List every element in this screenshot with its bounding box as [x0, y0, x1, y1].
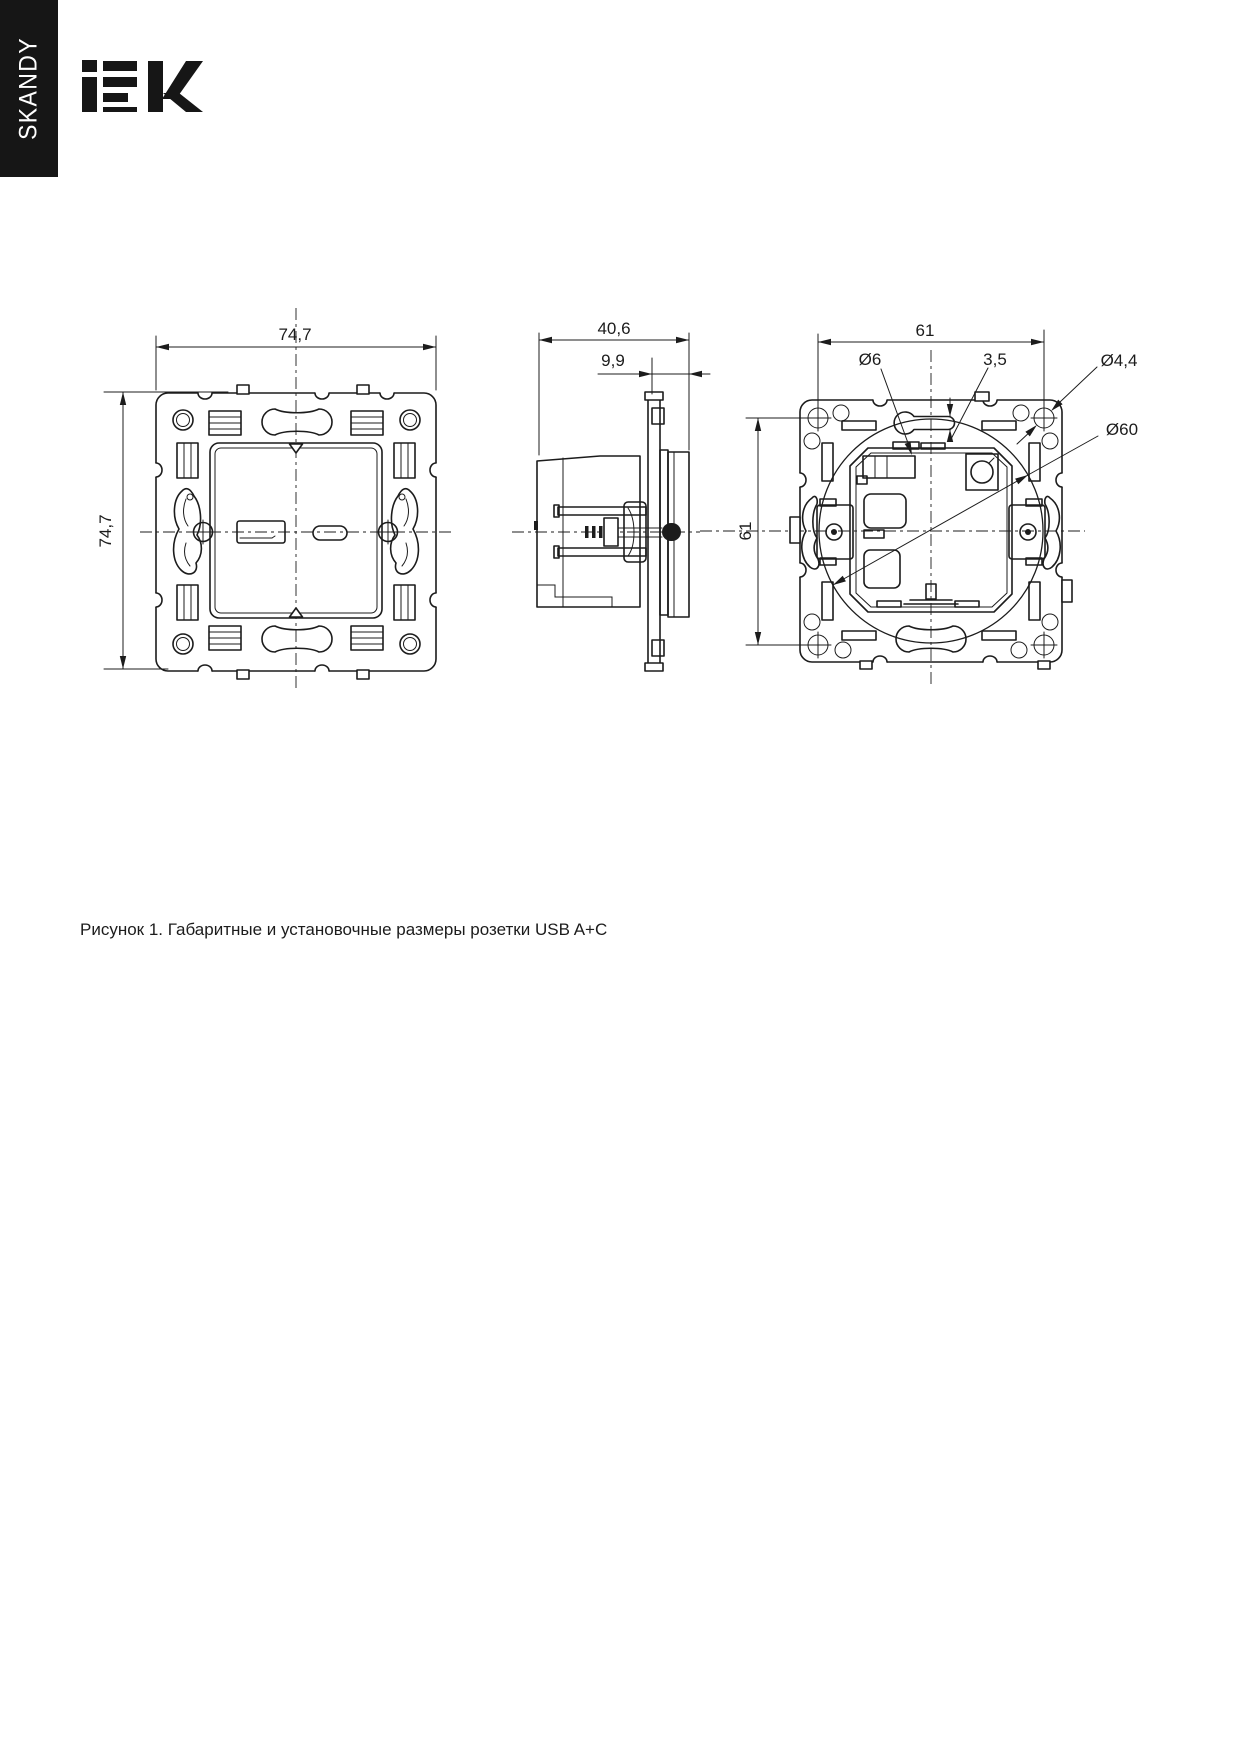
dim-back-width-label: 61: [916, 321, 935, 340]
dim-front-height: 74,7: [96, 392, 228, 669]
front-side-screw-left: [191, 520, 215, 544]
dim-front-height-label: 74,7: [96, 514, 115, 547]
dim-side-panel: 9,9: [598, 351, 710, 394]
figure-caption: Рисунок 1. Габаритные и установочные раз…: [80, 920, 607, 940]
usb-c-port: [313, 526, 347, 540]
dim-front-width-label: 74,7: [278, 325, 311, 344]
dim-support-dia: Ø60: [833, 420, 1138, 585]
dim-back-width: 61: [818, 321, 1044, 406]
figure-drawing: 74,7 74,7: [0, 0, 1239, 760]
dim-screw-hole-dia-label: Ø4,4: [1101, 351, 1138, 370]
dim-side-panel-label: 9,9: [601, 351, 625, 370]
dim-slot-width-label: 3,5: [983, 350, 1007, 369]
kidney-slot: [174, 489, 202, 574]
back-view-drawing: 61 61 Ø6: [700, 321, 1138, 688]
dim-hole-dia-label: Ø6: [859, 350, 882, 369]
dim-side-depth: 40,6: [539, 319, 689, 455]
dim-side-depth-label: 40,6: [597, 319, 630, 338]
dim-back-height-label: 61: [736, 522, 755, 541]
dim-support-dia-label: Ø60: [1106, 420, 1138, 439]
front-side-screw-right: [376, 520, 400, 544]
side-view-drawing: 40,6 9,9: [512, 319, 710, 671]
datasheet-page: SKANDY: [0, 0, 1239, 1746]
mounting-claw: [802, 496, 853, 569]
front-view-drawing: 74,7 74,7: [96, 308, 452, 690]
